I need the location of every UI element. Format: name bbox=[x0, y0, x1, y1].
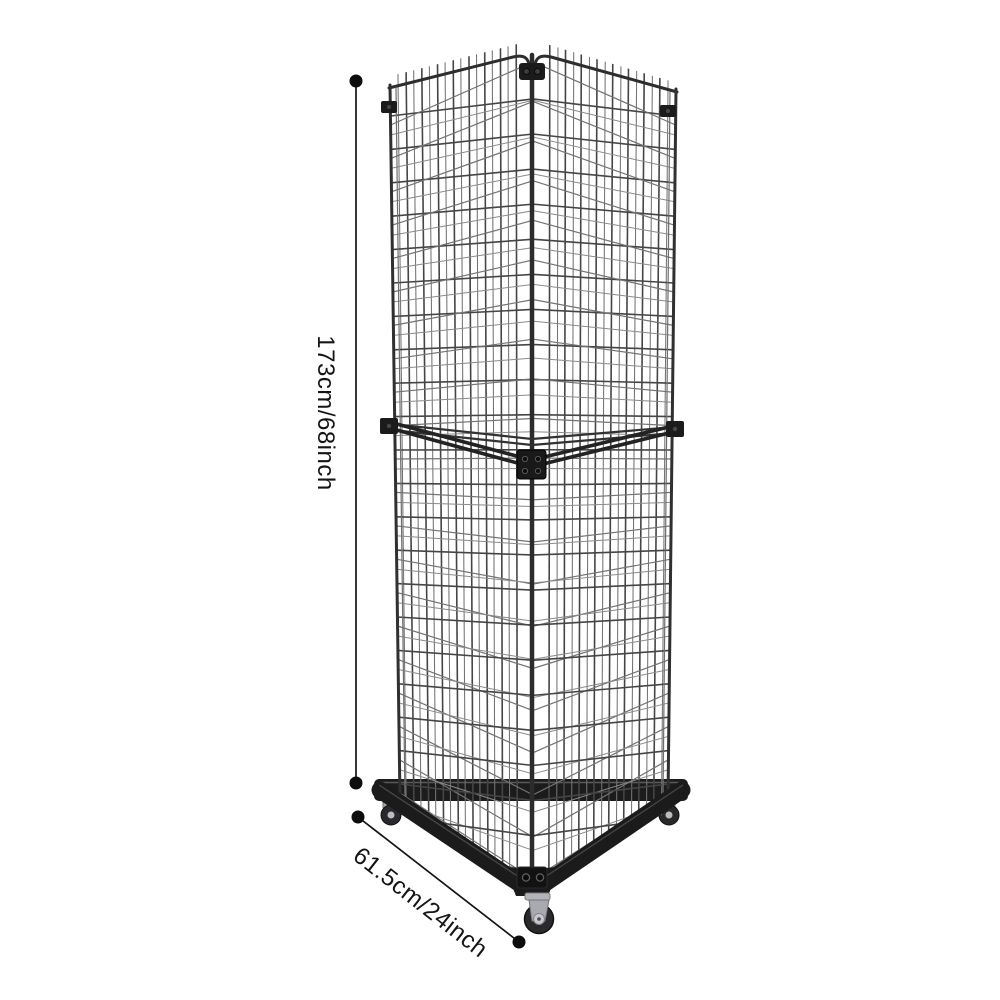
base-apex-plate bbox=[517, 867, 547, 888]
wire bbox=[653, 40, 660, 880]
mid-right-clip bbox=[666, 421, 684, 437]
center-joint-plate bbox=[517, 450, 546, 479]
wire bbox=[534, 468, 672, 469]
top-left-clip bbox=[381, 101, 397, 113]
front-caster bbox=[525, 893, 554, 934]
top-right-clip bbox=[660, 105, 676, 117]
wire bbox=[549, 40, 550, 880]
right-grid-panel bbox=[534, 40, 676, 963]
wire bbox=[445, 40, 451, 880]
wire bbox=[399, 751, 532, 766]
wire bbox=[594, 40, 598, 880]
wire bbox=[616, 40, 621, 880]
wire bbox=[406, 40, 415, 880]
wire bbox=[534, 458, 672, 459]
wire bbox=[396, 483, 532, 484]
wire bbox=[579, 40, 582, 880]
wire bbox=[469, 40, 473, 880]
wire bbox=[623, 40, 628, 880]
left-grid-panel bbox=[390, 40, 532, 963]
wire bbox=[485, 40, 488, 880]
wire bbox=[608, 40, 612, 880]
wire bbox=[395, 458, 532, 459]
height-dimension bbox=[350, 75, 363, 790]
dimension-dot bbox=[350, 75, 363, 88]
display-rack-illustration bbox=[0, 0, 1000, 1000]
wire bbox=[395, 468, 532, 469]
mid-left-clip bbox=[380, 418, 398, 434]
product-dimension-diagram: 173cm/68inch 61.5cm/24inch bbox=[0, 0, 1000, 1000]
dimension-dot bbox=[350, 777, 363, 790]
wire bbox=[534, 751, 669, 766]
wire bbox=[476, 40, 480, 880]
wire bbox=[534, 415, 672, 417]
wire bbox=[646, 40, 653, 880]
wire bbox=[586, 40, 589, 880]
top-center-plate bbox=[519, 63, 545, 80]
height-dimension-label: 173cm/68inch bbox=[311, 335, 339, 490]
dimension-dot bbox=[352, 811, 365, 824]
wire bbox=[534, 483, 672, 484]
wire bbox=[492, 40, 495, 880]
wire bbox=[572, 40, 574, 880]
dimension-dot bbox=[513, 936, 526, 949]
wire bbox=[413, 40, 421, 880]
wire bbox=[437, 40, 444, 880]
wire bbox=[395, 415, 532, 417]
